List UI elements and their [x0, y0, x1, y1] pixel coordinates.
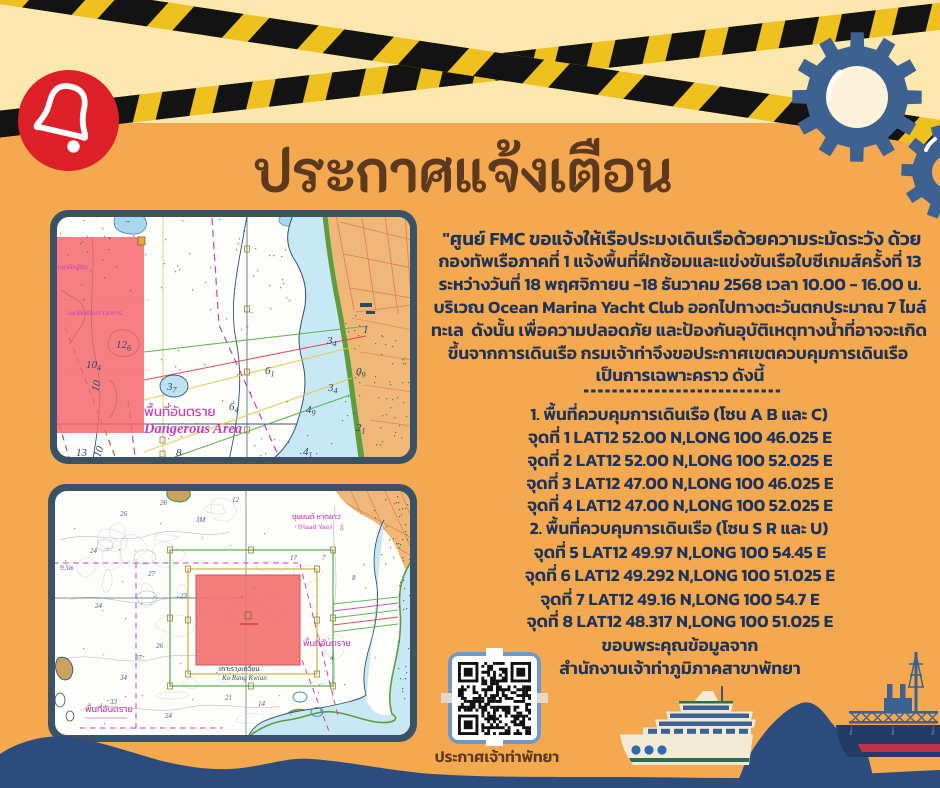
svg-text:27: 27: [148, 570, 156, 578]
svg-text:5: 5: [340, 524, 344, 532]
svg-text:24: 24: [90, 547, 98, 555]
svg-text:14: 14: [258, 700, 266, 708]
svg-text:4: 4: [330, 654, 334, 662]
svg-text:24: 24: [165, 712, 173, 720]
svg-text:17: 17: [290, 554, 298, 562]
svg-text:26: 26: [120, 510, 128, 518]
svg-text:Dangerous Area: Dangerous Area: [143, 421, 242, 437]
svg-text:8: 8: [352, 574, 356, 582]
svg-text:24: 24: [95, 602, 103, 610]
svg-text:23: 23: [180, 592, 188, 600]
svg-text:3M: 3M: [195, 516, 207, 524]
svg-text:1: 1: [363, 324, 369, 336]
svg-text:21: 21: [225, 694, 232, 702]
svg-text:34: 34: [119, 674, 128, 682]
svg-text:Ko Rang Kwian: Ko Rang Kwian: [221, 674, 267, 682]
svg-text:9.5m: 9.5m: [60, 564, 74, 572]
svg-text:33: 33: [109, 698, 118, 706]
svg-text:26: 26: [156, 642, 164, 650]
svg-text:27: 27: [135, 654, 143, 662]
svg-text:26: 26: [160, 499, 168, 507]
svg-text:7: 7: [322, 554, 326, 562]
svg-text:12: 12: [232, 496, 240, 504]
